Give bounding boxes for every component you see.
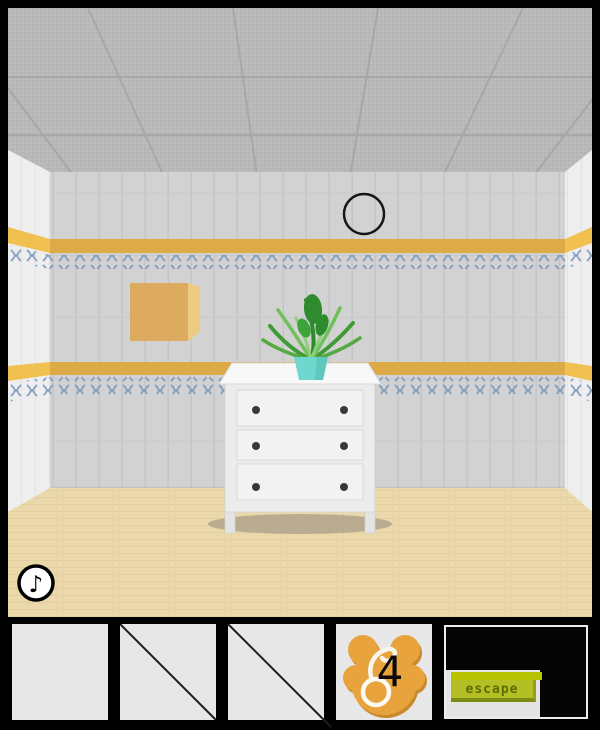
dresser-leg-left bbox=[225, 512, 235, 533]
right-wall bbox=[565, 150, 592, 512]
inventory-slot-1[interactable] bbox=[12, 624, 108, 720]
music-note-icon: ♪ bbox=[29, 572, 44, 598]
drawer-3[interactable] bbox=[237, 464, 363, 500]
back-wall-upper-ornament-band bbox=[50, 255, 565, 269]
wooden-box[interactable] bbox=[130, 283, 200, 341]
medal-item-icon[interactable]: 4 bbox=[336, 624, 432, 720]
music-button[interactable]: ♪ bbox=[19, 566, 53, 600]
inventory-bar: 4 escape bbox=[0, 617, 600, 730]
escape-button-top-edge bbox=[451, 672, 542, 680]
room-view: ♪ bbox=[8, 8, 592, 617]
escape-button[interactable]: escape bbox=[451, 680, 536, 702]
inventory-slot-5: escape bbox=[444, 625, 588, 719]
medal-count: 4 bbox=[377, 647, 404, 696]
back-wall-upper-stripe bbox=[50, 239, 565, 253]
left-wall bbox=[8, 150, 50, 512]
dresser-leg-right bbox=[365, 512, 375, 533]
crossed-out-icon bbox=[228, 624, 324, 720]
inventory-slot-4[interactable]: 4 bbox=[336, 624, 432, 720]
dresser-shadow bbox=[208, 514, 392, 534]
inventory-slot-3[interactable] bbox=[228, 624, 324, 720]
inventory-slot-2[interactable] bbox=[120, 624, 216, 720]
crossed-out-icon bbox=[120, 624, 216, 720]
game-window: { "hud": { "music_button_glyph": "♪" }, … bbox=[0, 0, 600, 730]
dresser-drawers[interactable] bbox=[237, 390, 363, 500]
room-scene: ♪ bbox=[8, 8, 592, 617]
dresser[interactable] bbox=[219, 363, 381, 533]
